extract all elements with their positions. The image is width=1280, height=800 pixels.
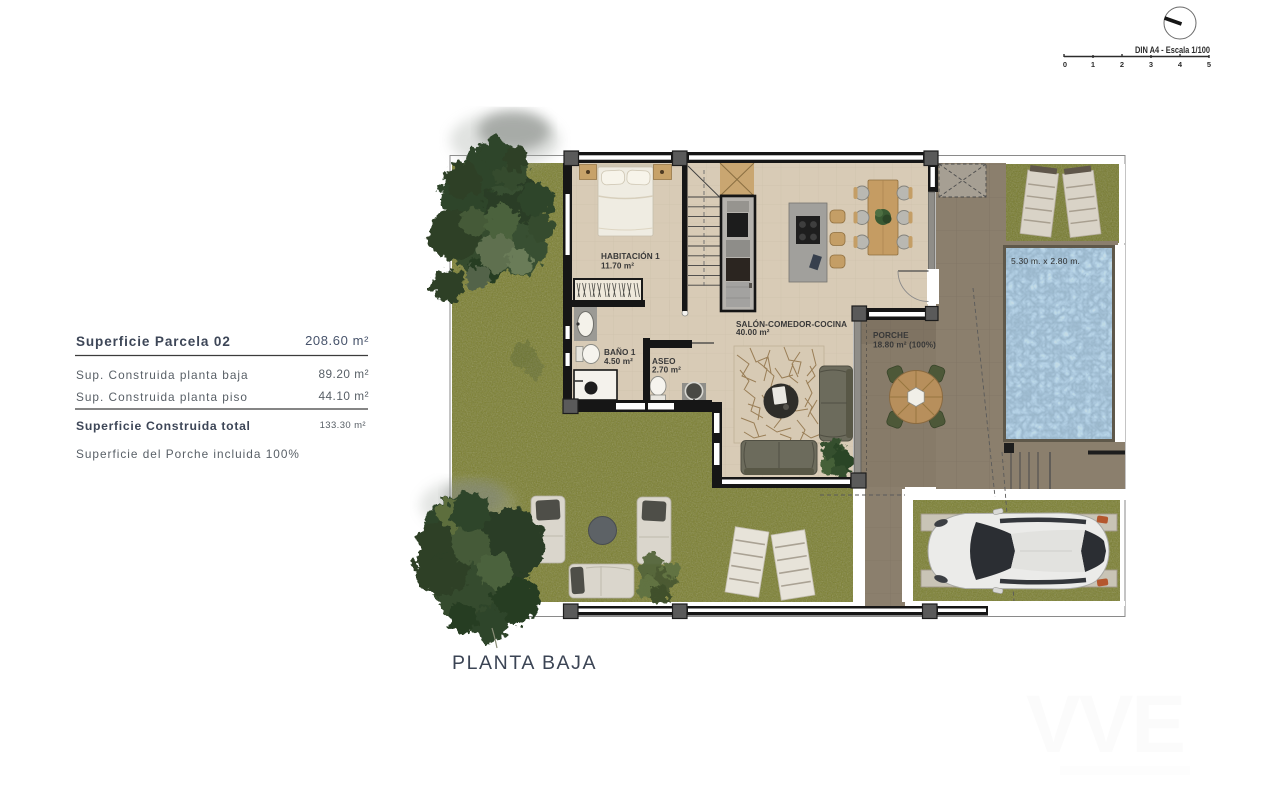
svg-text:VVE: VVE: [1026, 679, 1184, 770]
svg-text:11.70 m²: 11.70 m²: [601, 262, 634, 271]
svg-text:5.30 m. x 2.80 m.: 5.30 m. x 2.80 m.: [1011, 256, 1080, 266]
svg-text:BAÑO 1: BAÑO 1: [604, 347, 636, 357]
svg-text:3: 3: [1149, 60, 1153, 69]
svg-text:0: 0: [1063, 60, 1067, 69]
svg-text:5: 5: [1207, 60, 1211, 69]
svg-text:133.30 m²: 133.30 m²: [320, 420, 366, 431]
svg-text:44.10 m²: 44.10 m²: [318, 389, 369, 403]
svg-text:Superficie Parcela 02: Superficie Parcela 02: [76, 334, 231, 349]
svg-text:HABITACIÓN 1: HABITACIÓN 1: [601, 250, 660, 261]
svg-text:DIN A4 - Escala 1/100: DIN A4 - Escala 1/100: [1135, 45, 1210, 56]
svg-text:Sup. Construida planta baja: Sup. Construida planta baja: [76, 368, 249, 382]
svg-text:4.50 m²: 4.50 m²: [604, 357, 633, 366]
svg-text:Superficie Construida total: Superficie Construida total: [76, 419, 251, 433]
svg-text:89.20 m²: 89.20 m²: [318, 367, 369, 381]
svg-text:2.70 m²: 2.70 m²: [652, 366, 681, 375]
svg-text:PORCHE: PORCHE: [873, 331, 909, 340]
svg-text:18.80 m² (100%): 18.80 m² (100%): [873, 341, 936, 350]
svg-text:40.00 m²: 40.00 m²: [736, 328, 770, 337]
svg-text:Superficie del Porche incluida: Superficie del Porche incluida 100%: [76, 447, 300, 461]
svg-text:2: 2: [1120, 60, 1124, 69]
svg-text:208.60 m²: 208.60 m²: [305, 333, 369, 348]
svg-text:PLANTA BAJA: PLANTA BAJA: [452, 652, 597, 674]
svg-text:Sup. Construida planta piso: Sup. Construida planta piso: [76, 390, 248, 404]
svg-text:1: 1: [1091, 60, 1095, 69]
